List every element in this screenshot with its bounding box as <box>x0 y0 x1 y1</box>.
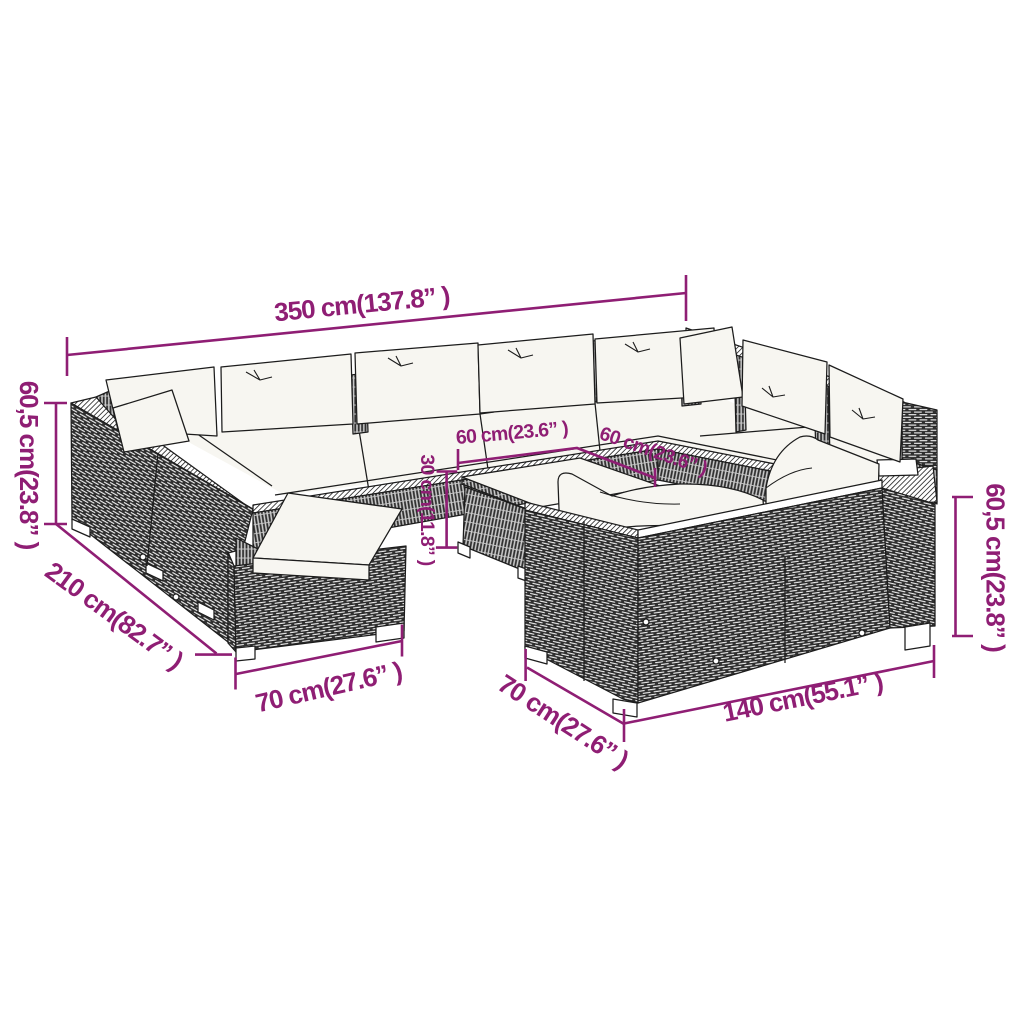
svg-text:60,5 cm(23.8” ): 60,5 cm(23.8” ) <box>981 483 1011 652</box>
svg-text:30 cm(11.8” ): 30 cm(11.8” ) <box>416 454 438 565</box>
svg-text:60,5 cm(23.8” ): 60,5 cm(23.8” ) <box>14 381 44 550</box>
